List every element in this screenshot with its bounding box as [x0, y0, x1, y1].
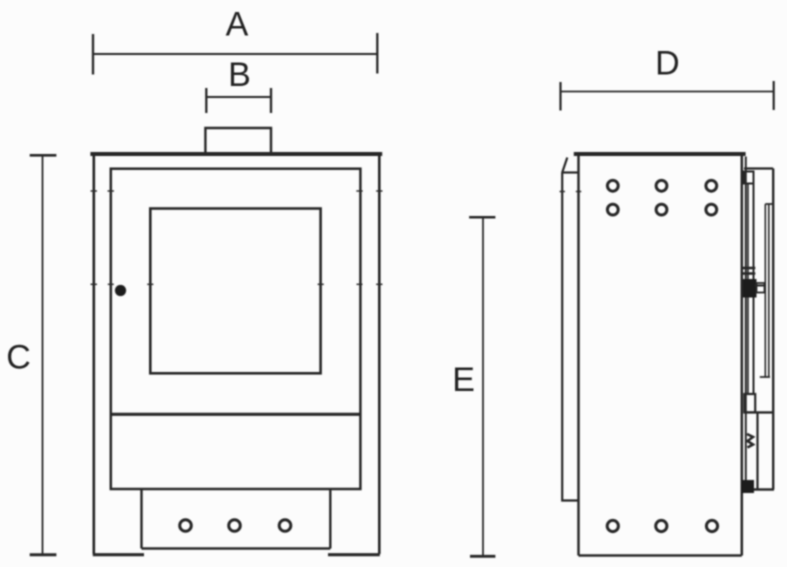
svg-text:B: B: [228, 56, 251, 94]
svg-text:D: D: [655, 44, 680, 82]
svg-text:A: A: [226, 6, 249, 44]
svg-text:E: E: [452, 361, 475, 399]
svg-text:C: C: [6, 338, 31, 376]
